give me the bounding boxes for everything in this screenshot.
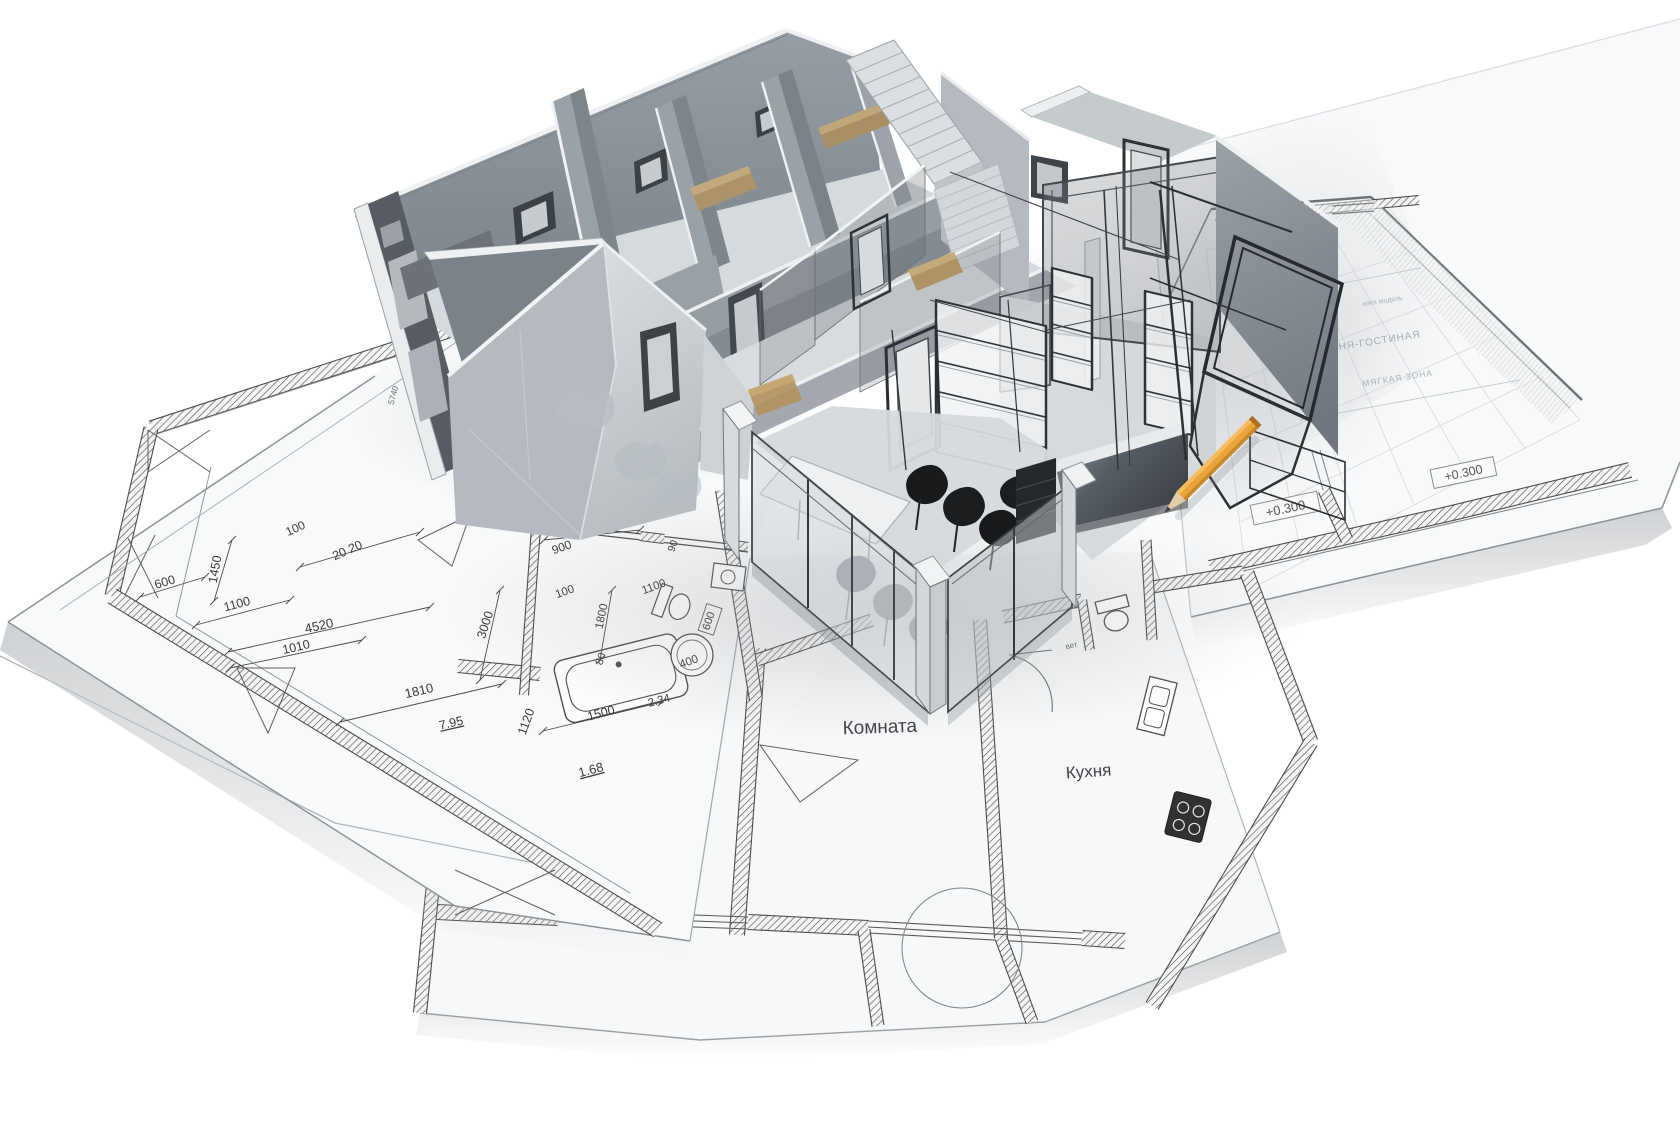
svg-text:Кухня: Кухня (1065, 760, 1112, 782)
